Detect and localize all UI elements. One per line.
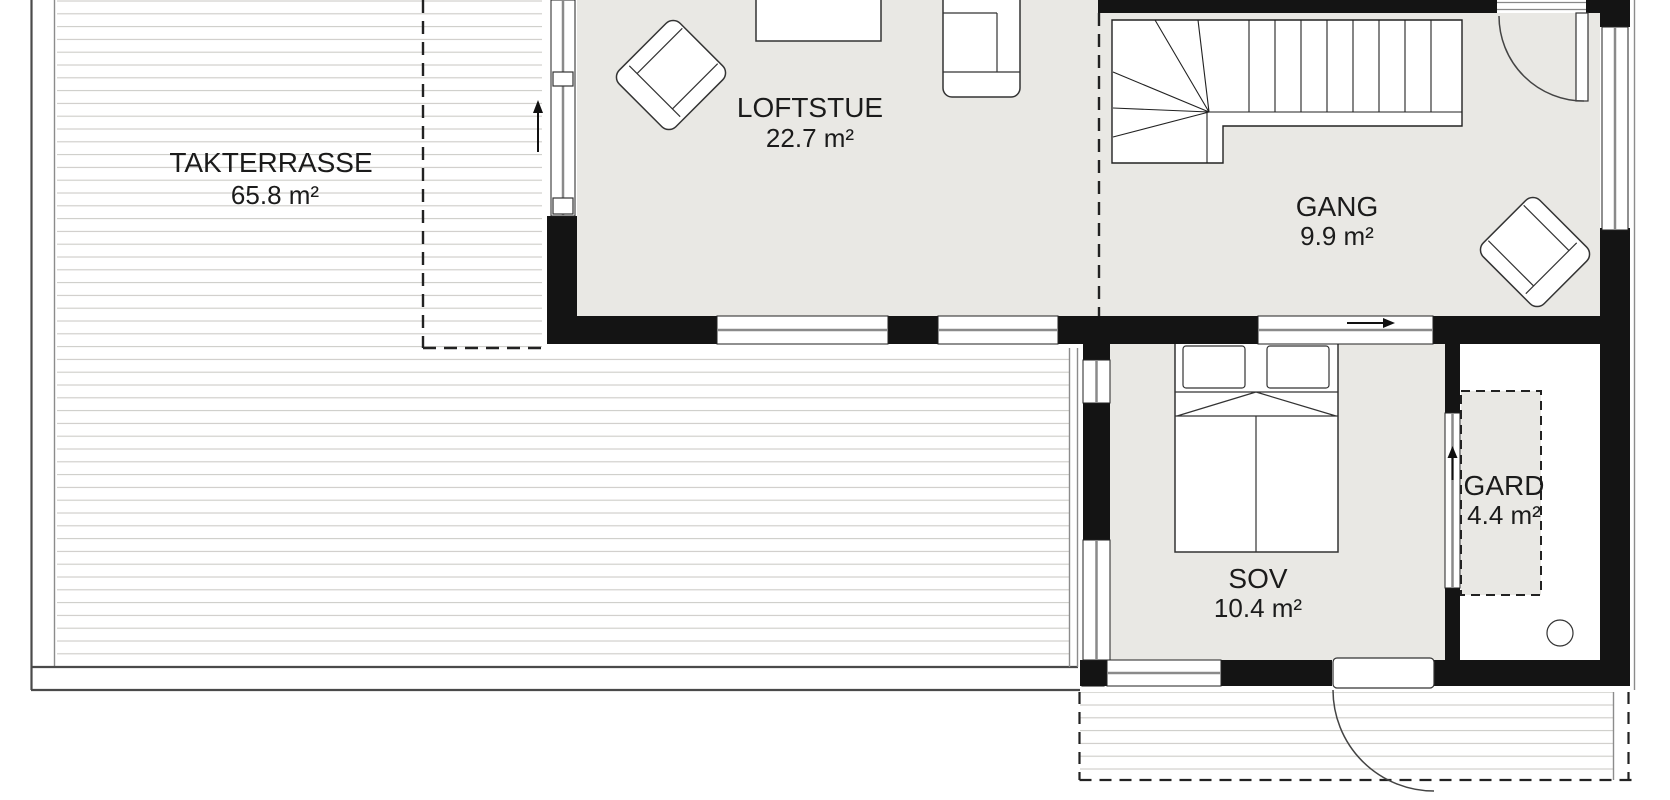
window-loftstue-south-2 <box>938 316 1058 344</box>
room-label-loftstue: LOFTSTUE <box>737 92 883 123</box>
double-bed <box>1175 340 1338 552</box>
room-area-gang: 9.9 m² <box>1300 221 1374 251</box>
sliding-door-sov-gard <box>1445 413 1460 588</box>
room-area-gard: 4.4 m² <box>1467 500 1541 530</box>
room-area-loftstue: 22.7 m² <box>766 123 854 153</box>
window-sov-south <box>1107 660 1221 686</box>
floor-drain-symbol <box>1547 620 1573 646</box>
window-loftstue-south-1 <box>717 316 888 344</box>
room-area-sov: 10.4 m² <box>1214 593 1302 623</box>
balcony-decking <box>1080 692 1614 780</box>
floor-plan: TAKTERRASSE 65.8 m² LOFTSTUE 22.7 m² GAN… <box>0 0 1670 800</box>
terrace-edge-right <box>1070 348 1078 667</box>
window-sov-west-small <box>1083 360 1110 403</box>
table <box>756 0 881 41</box>
room-label-gang: GANG <box>1296 191 1378 222</box>
floor-plan-drawing: TAKTERRASSE 65.8 m² LOFTSTUE 22.7 m² GAN… <box>0 0 1670 800</box>
sofa <box>943 0 1020 97</box>
window-sov-west-large <box>1083 540 1110 660</box>
room-label-sov: SOV <box>1228 563 1287 594</box>
window-gang-east <box>1602 27 1628 230</box>
room-label-takterrasse: TAKTERRASSE <box>169 147 372 178</box>
room-area-takterrasse: 65.8 m² <box>231 180 319 210</box>
sliding-door-gang-sov <box>1258 316 1433 344</box>
room-label-gard: GARD <box>1464 470 1545 501</box>
